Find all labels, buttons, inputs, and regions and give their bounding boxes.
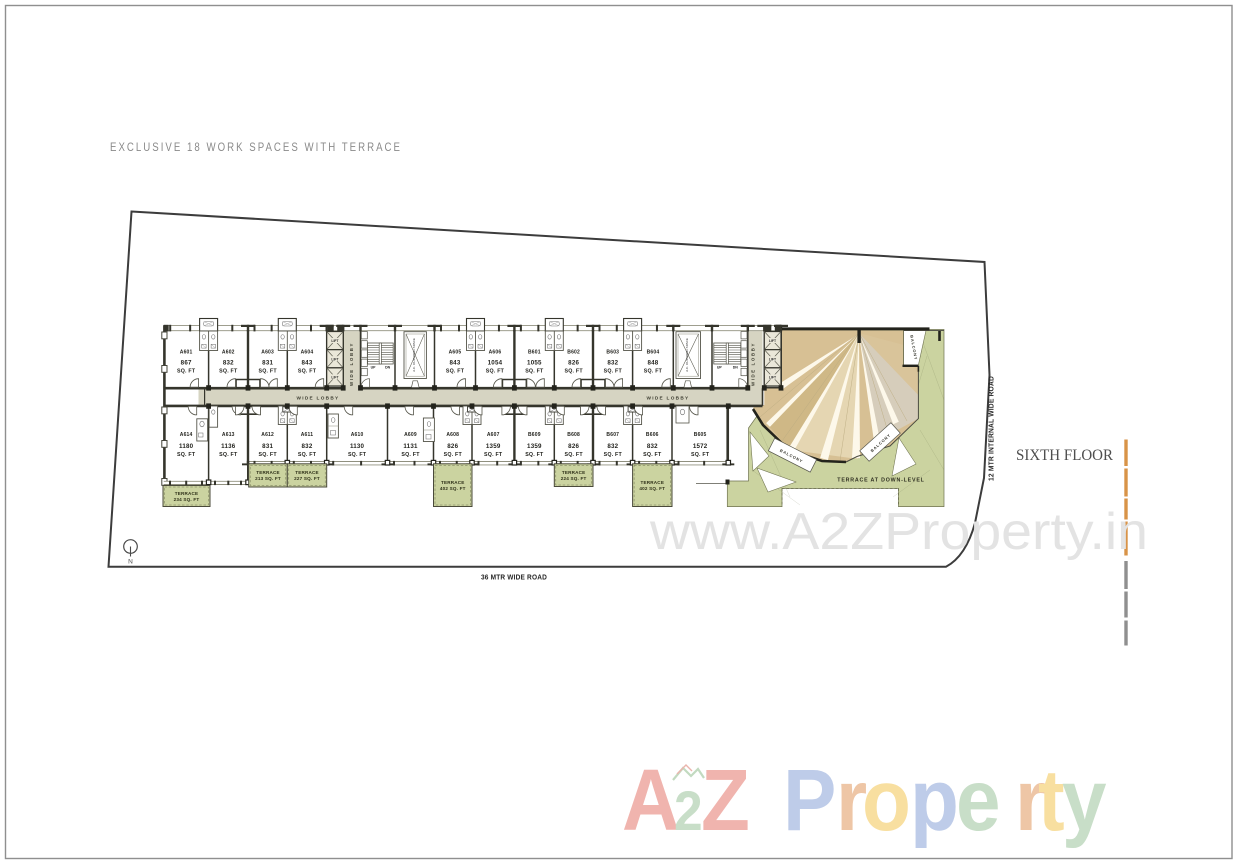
- svg-text:SQ. FT: SQ. FT: [219, 452, 238, 458]
- svg-text:A611: A611: [301, 432, 313, 438]
- svg-text:SQ. FT: SQ. FT: [177, 452, 196, 458]
- svg-text:y: y: [1062, 751, 1107, 849]
- svg-text:B606: B606: [646, 432, 659, 438]
- svg-text:SQ. FT: SQ. FT: [348, 452, 367, 458]
- svg-text:227 SQ. FT: 227 SQ. FT: [294, 476, 320, 481]
- svg-text:SQ. FT: SQ. FT: [259, 452, 278, 458]
- svg-text:B602: B602: [567, 350, 580, 356]
- svg-text:SQ. FT: SQ. FT: [604, 452, 623, 458]
- svg-text:B607: B607: [606, 432, 619, 438]
- svg-text:SIXTH FLOOR: SIXTH FLOOR: [1016, 447, 1113, 464]
- svg-text:1180: 1180: [179, 443, 194, 450]
- svg-text:UP: UP: [717, 366, 723, 370]
- svg-text:848: 848: [647, 360, 658, 367]
- svg-text:LIFT: LIFT: [331, 357, 339, 361]
- svg-text:p: p: [910, 751, 959, 849]
- svg-text:B608: B608: [567, 432, 580, 438]
- svg-text:Z: Z: [701, 751, 750, 849]
- svg-text:1131: 1131: [403, 443, 418, 450]
- svg-text:SQ. FT: SQ. FT: [446, 369, 465, 375]
- svg-text:SQ. FT: SQ. FT: [298, 452, 317, 458]
- svg-text:LIFT: LIFT: [769, 339, 777, 343]
- svg-text:832: 832: [223, 360, 234, 367]
- svg-text:EXCLUSIVE 18 WORK SPACES WITH: EXCLUSIVE 18 WORK SPACES WITH TERRACE: [110, 140, 402, 154]
- svg-text:SQ. FT: SQ. FT: [565, 369, 584, 375]
- svg-text:t: t: [1038, 751, 1065, 849]
- svg-text:A613: A613: [222, 432, 235, 438]
- svg-text:LIFT: LIFT: [331, 375, 339, 379]
- svg-text:A601: A601: [180, 350, 193, 356]
- svg-text:SQ. FT: SQ. FT: [525, 369, 544, 375]
- svg-text:12 MTR INTERNAL WIDE ROAD: 12 MTR INTERNAL WIDE ROAD: [987, 376, 996, 481]
- svg-text:832: 832: [647, 443, 658, 450]
- svg-text:WIDE LOBBY: WIDE LOBBY: [349, 342, 354, 386]
- svg-text:224 SQ. FT: 224 SQ. FT: [561, 476, 587, 481]
- svg-text:DN: DN: [385, 366, 391, 370]
- svg-text:A614: A614: [180, 432, 193, 438]
- svg-text:SQ. FT: SQ. FT: [525, 452, 544, 458]
- svg-text:TERRACE AT DOWN-LEVEL: TERRACE AT DOWN-LEVEL: [837, 478, 924, 484]
- svg-text:2: 2: [674, 780, 703, 842]
- svg-text:A.C. OUTDOOR SPACE: A.C. OUTDOOR SPACE: [685, 338, 689, 372]
- svg-text:832: 832: [607, 443, 618, 450]
- svg-text:SQ. FT: SQ. FT: [298, 369, 317, 375]
- svg-text:LIFT: LIFT: [331, 339, 339, 343]
- svg-text:402 SQ. FT: 402 SQ. FT: [440, 486, 466, 491]
- svg-text:36 MTR WIDE ROAD: 36 MTR WIDE ROAD: [481, 573, 547, 582]
- svg-text:TERRACE: TERRACE: [562, 470, 586, 475]
- svg-text:A603: A603: [261, 350, 274, 356]
- svg-text:832: 832: [607, 360, 618, 367]
- svg-text:1572: 1572: [693, 443, 708, 450]
- svg-text:www.A2ZProperty.in: www.A2ZProperty.in: [649, 502, 1148, 560]
- svg-text:1055: 1055: [527, 360, 542, 367]
- svg-text:SQ. FT: SQ. FT: [177, 369, 196, 375]
- svg-text:SQ. FT: SQ. FT: [604, 369, 623, 375]
- svg-text:WIDE LOBBY: WIDE LOBBY: [297, 396, 340, 401]
- svg-text:843: 843: [450, 360, 461, 367]
- svg-text:213 SQ. FT: 213 SQ. FT: [255, 476, 281, 481]
- svg-text:WIDE LOBBY: WIDE LOBBY: [751, 342, 756, 386]
- svg-text:SQ. FT: SQ. FT: [219, 369, 238, 375]
- svg-text:TERRACE: TERRACE: [441, 480, 465, 485]
- svg-text:LIFT: LIFT: [769, 357, 777, 361]
- svg-text:402 SQ. FT: 402 SQ. FT: [639, 486, 665, 491]
- svg-text:o: o: [862, 751, 911, 849]
- svg-text:B604: B604: [647, 350, 660, 356]
- svg-text:1359: 1359: [486, 443, 501, 450]
- svg-text:1359: 1359: [527, 443, 542, 450]
- svg-text:1130: 1130: [350, 443, 365, 450]
- svg-text:832: 832: [302, 443, 313, 450]
- svg-text:TERRACE: TERRACE: [640, 480, 664, 485]
- svg-text:SQ. FT: SQ. FT: [691, 452, 710, 458]
- svg-text:A608: A608: [446, 432, 459, 438]
- svg-text:A612: A612: [261, 432, 274, 438]
- svg-text:826: 826: [447, 443, 458, 450]
- svg-text:A.C. OUTDOOR SPACE: A.C. OUTDOOR SPACE: [412, 338, 416, 372]
- svg-text:UP: UP: [371, 366, 377, 370]
- svg-text:A605: A605: [449, 350, 462, 356]
- svg-text:843: 843: [302, 360, 313, 367]
- svg-text:1054: 1054: [488, 360, 503, 367]
- svg-text:SQ. FT: SQ. FT: [643, 452, 662, 458]
- svg-text:e: e: [956, 751, 1001, 849]
- svg-text:1136: 1136: [221, 443, 236, 450]
- svg-text:TERRACE: TERRACE: [256, 470, 280, 475]
- svg-text:DN: DN: [733, 366, 739, 370]
- svg-text:831: 831: [262, 443, 273, 450]
- svg-text:SQ. FT: SQ. FT: [486, 369, 505, 375]
- svg-text:A: A: [622, 751, 680, 849]
- svg-text:LIFT: LIFT: [769, 375, 777, 379]
- svg-text:831: 831: [262, 360, 273, 367]
- svg-text:A609: A609: [404, 432, 417, 438]
- svg-text:A606: A606: [489, 350, 502, 356]
- svg-text:SQ. FT: SQ. FT: [565, 452, 584, 458]
- svg-text:WIDE LOBBY: WIDE LOBBY: [647, 396, 690, 401]
- svg-text:SQ. FT: SQ. FT: [401, 452, 420, 458]
- svg-text:826: 826: [568, 360, 579, 367]
- svg-text:A607: A607: [487, 432, 500, 438]
- svg-text:826: 826: [568, 443, 579, 450]
- svg-text:N: N: [128, 559, 133, 566]
- svg-text:B603: B603: [606, 350, 619, 356]
- svg-text:P: P: [783, 751, 836, 849]
- svg-text:B609: B609: [528, 432, 541, 438]
- svg-text:A604: A604: [301, 350, 314, 356]
- svg-text:TERRACE: TERRACE: [295, 470, 319, 475]
- svg-text:B605: B605: [694, 432, 707, 438]
- svg-text:SQ. FT: SQ. FT: [484, 452, 503, 458]
- svg-text:867: 867: [181, 360, 192, 367]
- svg-text:SQ. FT: SQ. FT: [444, 452, 463, 458]
- svg-text:234 SQ. FT: 234 SQ. FT: [174, 497, 200, 502]
- svg-text:SQ. FT: SQ. FT: [259, 369, 278, 375]
- svg-text:B601: B601: [528, 350, 541, 356]
- svg-text:A610: A610: [351, 432, 364, 438]
- svg-text:TERRACE: TERRACE: [175, 491, 199, 496]
- svg-text:SQ. FT: SQ. FT: [644, 369, 663, 375]
- svg-text:A602: A602: [222, 350, 235, 356]
